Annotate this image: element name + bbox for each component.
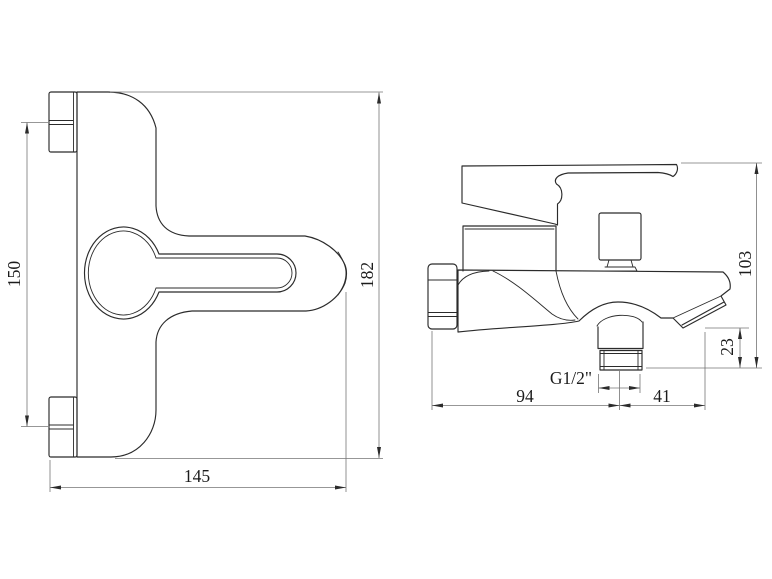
side-wall-nut [428, 264, 457, 329]
dimension-41: 41 [620, 332, 706, 410]
side-body-sweep-2 [556, 271, 578, 319]
side-spout-aerator-line [682, 302, 724, 325]
dimension-23: 23 [705, 328, 749, 368]
dim-23-label: 23 [717, 338, 737, 356]
side-threaded-collar [600, 351, 642, 371]
dimension-thread: G1/2" [550, 368, 640, 393]
thread-size-label: G1/2" [550, 368, 592, 388]
dimension-150: 150 [4, 123, 48, 427]
front-top-nut [49, 92, 77, 152]
front-lobe-highlight [338, 252, 346, 295]
side-lever-handle [462, 165, 677, 226]
side-diverter-knob [599, 213, 641, 271]
dimension-103: 103 [646, 163, 762, 368]
front-handle-keyhole-inner [88, 231, 292, 315]
front-bottom-nut [49, 397, 77, 457]
technical-drawing-canvas: 150 182 145 103 23 94 41 G1/2" [0, 0, 772, 579]
front-view [49, 92, 347, 457]
side-outlet-dome [597, 315, 642, 326]
dimension-182: 182 [110, 92, 383, 459]
side-view [428, 165, 730, 371]
drawing-page: 150 182 145 103 23 94 41 G1/2" [0, 0, 772, 579]
side-body-fillet [458, 271, 489, 285]
dim-41-label: 41 [653, 386, 671, 406]
dim-103-label: 103 [735, 251, 755, 278]
side-cartridge-housing [463, 226, 556, 271]
front-body-outline [77, 92, 347, 457]
side-body-outline [458, 270, 730, 332]
dim-182-label: 182 [357, 262, 377, 288]
dim-94-label: 94 [516, 386, 534, 406]
dim-145-label: 145 [184, 466, 211, 486]
dimension-145: 145 [50, 292, 346, 492]
side-outlet-cylinder [598, 322, 643, 349]
dim-150-label: 150 [4, 261, 24, 288]
front-handle-keyhole-outer [84, 227, 296, 319]
